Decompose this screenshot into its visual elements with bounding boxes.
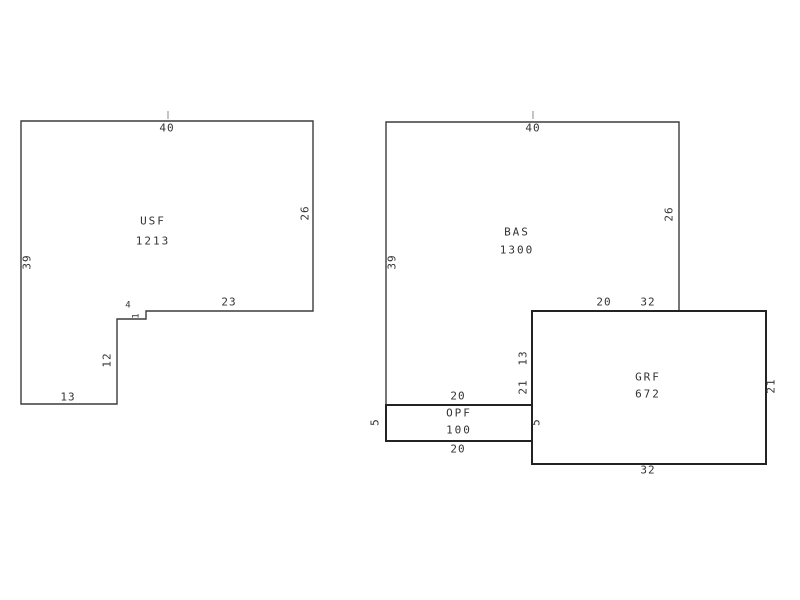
- sketch-page: USF1213BAS1300OPF100GRF67240263923411213…: [0, 0, 800, 600]
- dim-label-5: 5: [370, 418, 381, 426]
- opf-name-label: OPF: [446, 408, 472, 419]
- dim-label-20: 20: [450, 391, 465, 402]
- dim-label-13: 13: [60, 392, 75, 403]
- dim-label-21: 21: [766, 378, 777, 393]
- dim-label-4: 4: [125, 302, 130, 311]
- grf-name-label: GRF: [635, 372, 661, 383]
- usf-area-value: 1213: [136, 236, 171, 247]
- dim-label-39: 39: [22, 254, 33, 269]
- dim-label-32: 32: [640, 297, 655, 308]
- dim-label-26: 26: [300, 205, 311, 220]
- dim-label-39: 39: [387, 254, 398, 269]
- dim-label-40: 40: [159, 123, 174, 134]
- dim-label-26: 26: [664, 206, 675, 221]
- dim-label-5: 5: [531, 418, 542, 426]
- dim-label-21: 21: [518, 379, 529, 394]
- dim-label-23: 23: [221, 297, 236, 308]
- dim-label-1: 1: [133, 313, 142, 318]
- usf-name-label: USF: [140, 216, 166, 227]
- dim-label-32: 32: [640, 465, 655, 476]
- dim-label-20: 20: [596, 297, 611, 308]
- opf-area-value: 100: [446, 425, 472, 436]
- labels-layer: USF1213BAS1300OPF100GRF67240263923411213…: [0, 0, 800, 600]
- dim-label-40: 40: [525, 123, 540, 134]
- bas-area-value: 1300: [500, 245, 535, 256]
- dim-label-13: 13: [518, 350, 529, 365]
- bas-name-label: BAS: [504, 227, 530, 238]
- dim-label-12: 12: [102, 352, 113, 367]
- dim-label-20: 20: [450, 444, 465, 455]
- grf-area-value: 672: [635, 389, 661, 400]
